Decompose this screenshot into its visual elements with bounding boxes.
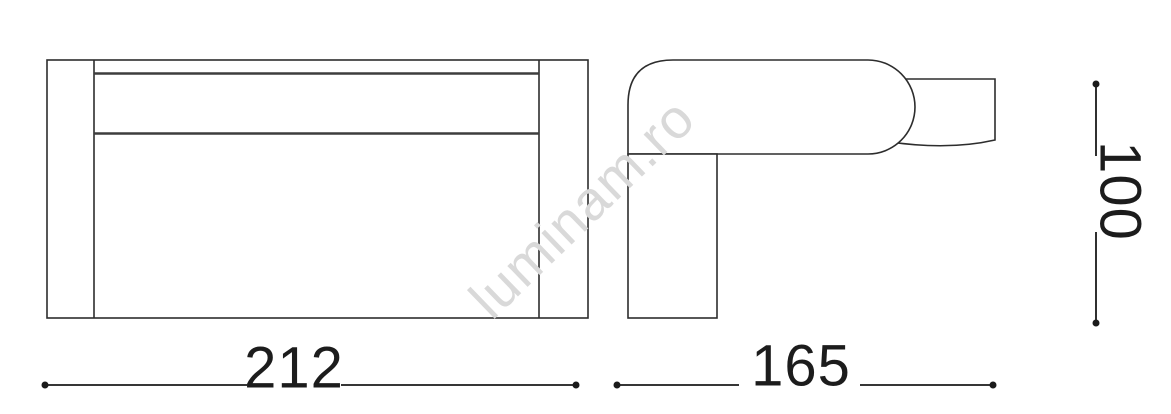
dimension-height: 100 [1088,81,1153,327]
technical-drawing: luminam.ro 212 165 100 [0,0,1171,414]
dimension-height-label: 100 [1088,141,1153,241]
side-view [628,60,995,318]
dimension-width: 212 [42,336,580,401]
dimension-depth-label: 165 [751,334,851,399]
dimension-width-label: 212 [244,336,344,401]
drawing-canvas: luminam.ro 212 165 100 [0,0,1171,414]
dimension-depth: 165 [614,334,997,399]
